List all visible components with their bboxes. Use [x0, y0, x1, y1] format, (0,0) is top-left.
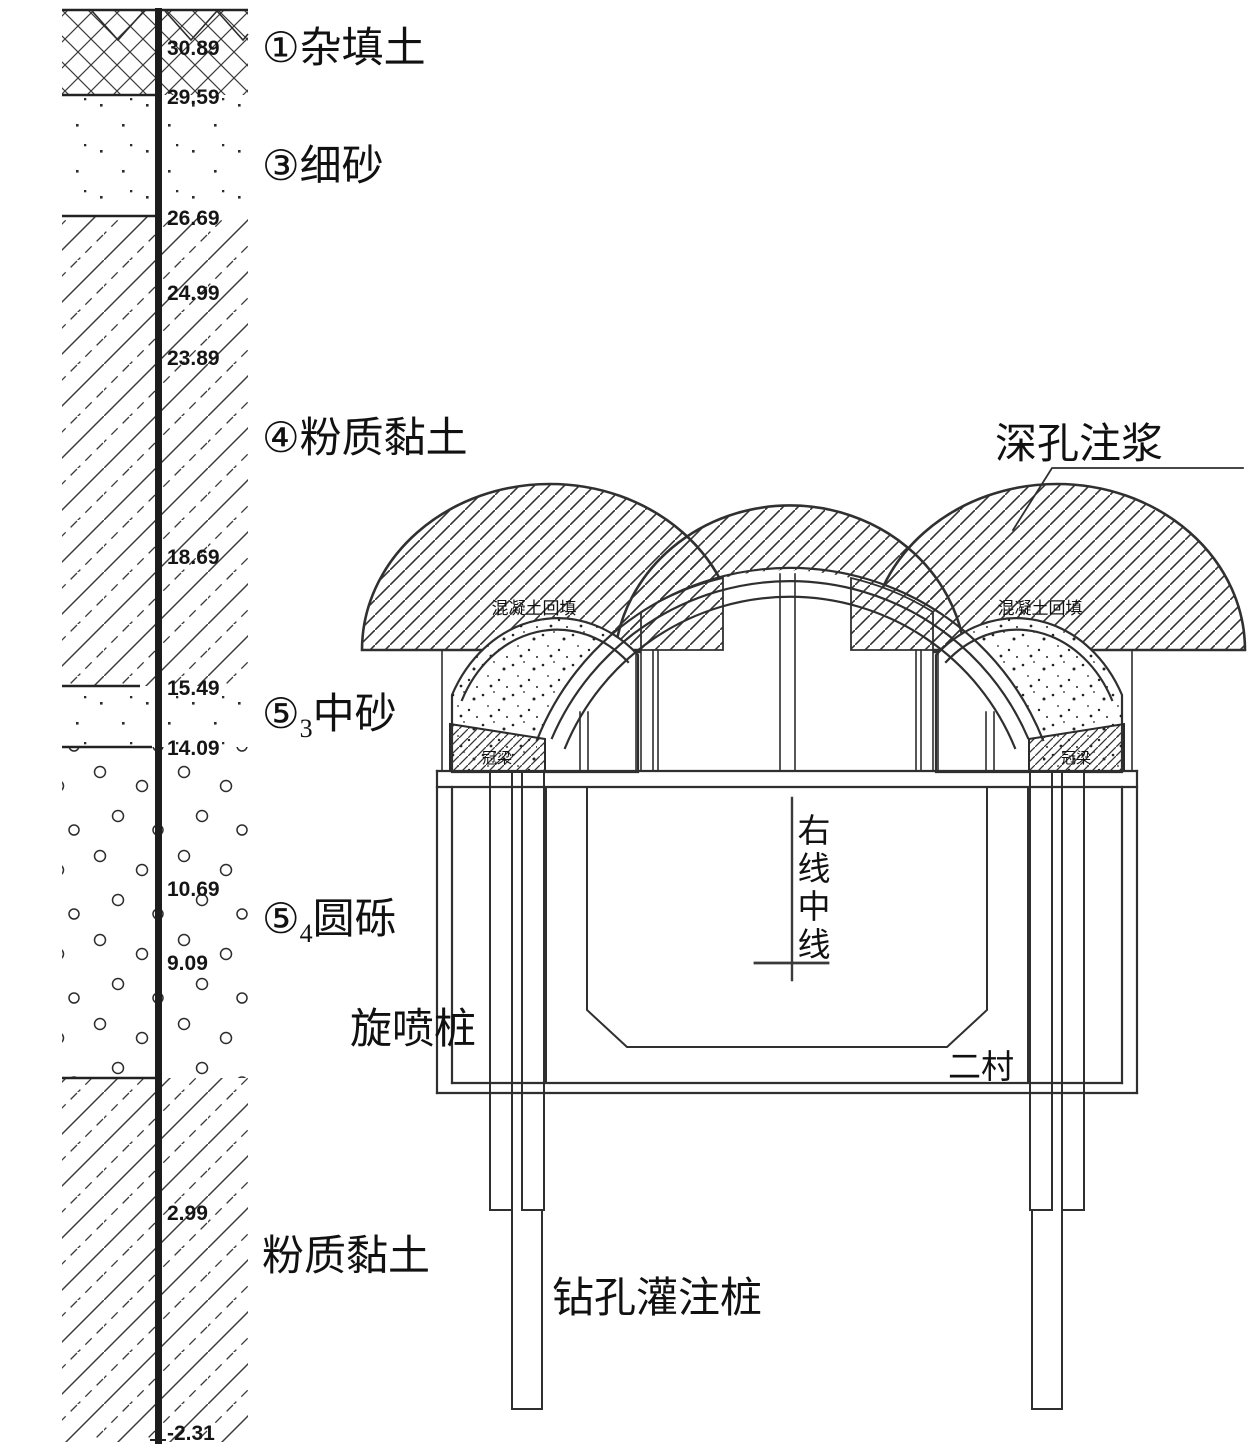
elevation-label: 26.69 — [167, 207, 220, 230]
stratum-label-fine-sand: ③细砂 — [262, 144, 384, 190]
stratum-label-gravel: ⑤4圆砾 — [262, 897, 397, 948]
elevation-label: 2.99 — [167, 1202, 208, 1225]
concrete-backfill-label-left: 混凝土回填 — [492, 599, 577, 618]
elevation-label: 29.59 — [167, 86, 220, 109]
elevation-label: 15.49 — [167, 677, 220, 700]
centerline-char: 线 — [798, 851, 831, 888]
elevation-label: 30.89 — [167, 37, 220, 60]
stratum-label-silty-clay2: 粉质黏土 — [262, 1234, 430, 1280]
crown-beam-label-left: 冠梁 — [482, 750, 512, 767]
bored-pile-label: 钻孔灌注桩 — [552, 1275, 762, 1322]
secondary-lining — [546, 787, 1028, 1083]
centerline-char: 中 — [798, 889, 831, 926]
geological-column: 30.89 29.59 26.69 24.99 23.89 18.69 15.4… — [62, 8, 468, 1445]
deep-hole-grouting-label: 深孔注浆 — [995, 421, 1163, 468]
jet-grout-pile-left — [490, 772, 512, 1210]
crown-beam-label-right: 冠梁 — [1061, 750, 1091, 767]
right-wall — [1122, 771, 1137, 1093]
stratum-label-medium-sand: ⑤3中砂 — [262, 692, 397, 743]
jet-grout-pile-left — [522, 772, 544, 1210]
elevation-label: 9.09 — [167, 952, 208, 975]
elevation-label: 14.09 — [167, 737, 220, 760]
centerline-label: 右 线 中 线 — [798, 813, 831, 964]
jet-grout-pile-right — [1062, 772, 1084, 1210]
stratum-label-fill: ①杂填土 — [262, 26, 426, 72]
secondary-lining-label: 二村 — [948, 1049, 1014, 1086]
geology-tunnel-cross-section: 30.89 29.59 26.69 24.99 23.89 18.69 15.4… — [0, 0, 1259, 1448]
elevation-label: 18.69 — [167, 546, 220, 569]
jet-grout-pile-right — [1030, 772, 1052, 1210]
jet-grouting-pile-label: 旋喷桩 — [350, 1007, 476, 1053]
diagram-canvas: 30.89 29.59 26.69 24.99 23.89 18.69 15.4… — [0, 0, 1259, 1448]
borehole-line — [155, 8, 162, 1444]
elevation-label: -2.31 — [167, 1422, 215, 1445]
tunnel-cross-section: 深孔注浆 旋喷桩 钻孔灌注桩 二村 冠梁 冠梁 混凝土回填 混凝土回填 右 线 … — [350, 421, 1245, 1409]
elevation-label: 10.69 — [167, 878, 220, 901]
elevation-label: 24.99 — [167, 282, 220, 305]
stratum-label-silty-clay: ④粉质黏土 — [262, 416, 468, 462]
elevation-label: 23.89 — [167, 347, 220, 370]
lining-inner-profile — [587, 787, 987, 1047]
centerline-char: 线 — [798, 927, 831, 964]
centerline-char: 右 — [798, 813, 831, 850]
concrete-backfill-label-right: 混凝土回填 — [998, 599, 1083, 618]
